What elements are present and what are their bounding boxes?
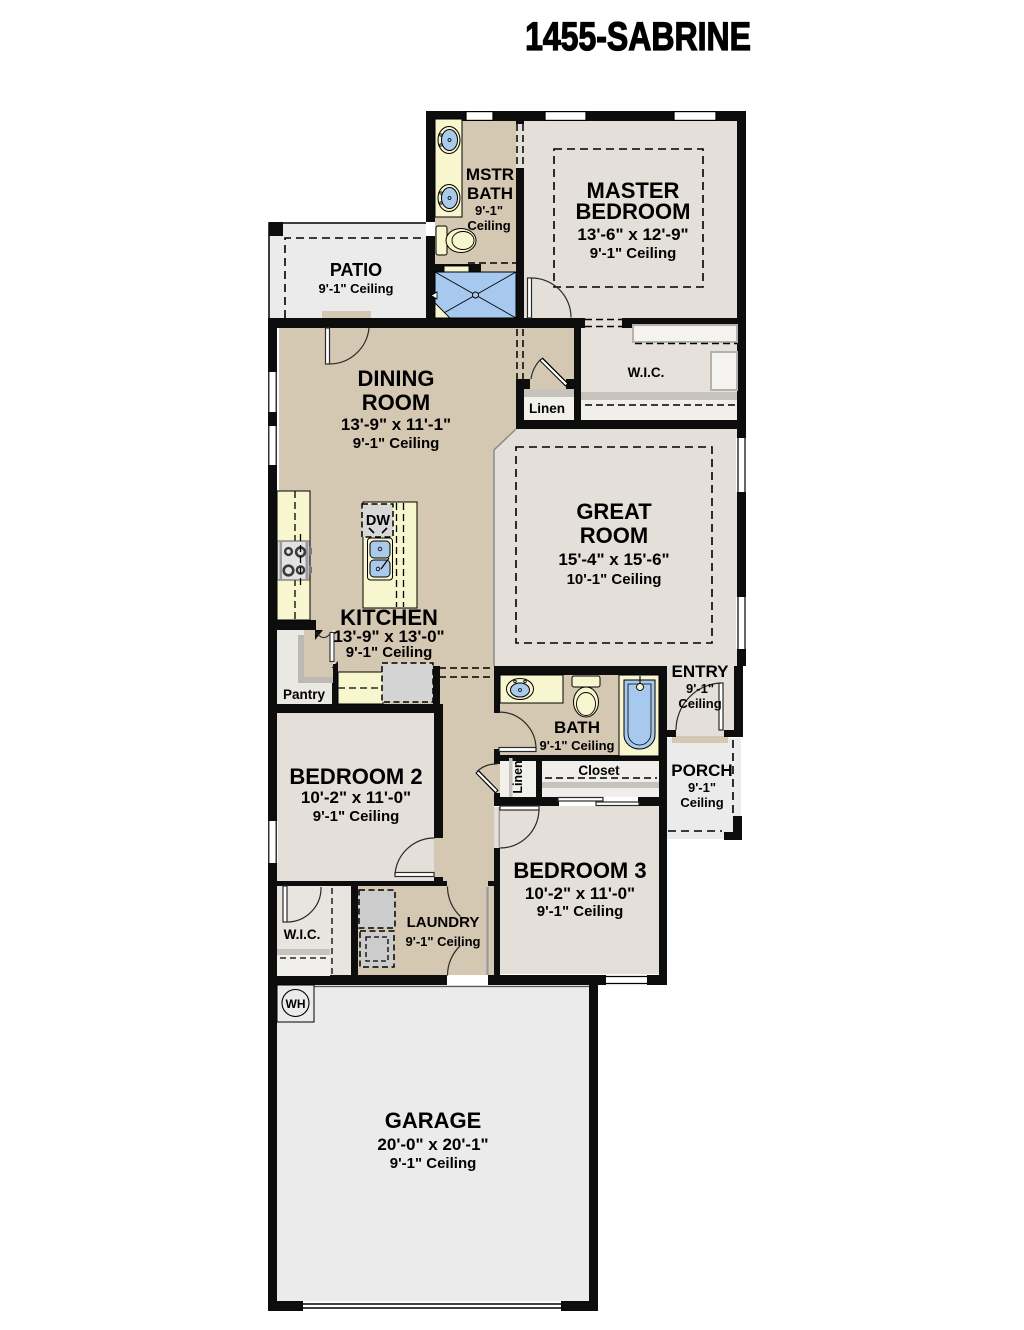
svg-text:WH: WH	[286, 997, 306, 1011]
svg-text:15'-4" x 15'-6": 15'-4" x 15'-6"	[558, 550, 669, 569]
svg-text:9'-1": 9'-1"	[475, 203, 503, 218]
svg-text:9'-1" Ceiling: 9'-1" Ceiling	[319, 281, 394, 296]
svg-text:ROOM: ROOM	[580, 523, 648, 548]
svg-text:9'-1" Ceiling: 9'-1" Ceiling	[406, 934, 481, 949]
svg-text:DINING: DINING	[358, 366, 435, 391]
svg-text:BEDROOM: BEDROOM	[576, 199, 691, 224]
svg-text:9'-1" Ceiling: 9'-1" Ceiling	[353, 435, 440, 452]
svg-text:BEDROOM 3: BEDROOM 3	[513, 858, 646, 883]
svg-text:9'-1": 9'-1"	[686, 681, 714, 696]
svg-text:Ceiling: Ceiling	[680, 795, 723, 810]
svg-text:13'-6" x 12'-9": 13'-6" x 12'-9"	[577, 225, 688, 244]
svg-text:Ceiling: Ceiling	[467, 218, 510, 233]
svg-text:9'-1" Ceiling: 9'-1" Ceiling	[313, 808, 400, 825]
svg-text:10'-2" x 11'-0": 10'-2" x 11'-0"	[301, 788, 411, 807]
svg-text:13'-9" x 11'-1": 13'-9" x 11'-1"	[341, 415, 451, 434]
svg-text:9'-1" Ceiling: 9'-1" Ceiling	[540, 738, 615, 753]
svg-text:W.I.C.: W.I.C.	[628, 365, 665, 380]
svg-text:MSTR: MSTR	[466, 165, 514, 184]
svg-text:Closet: Closet	[578, 763, 620, 778]
svg-text:Linen: Linen	[529, 401, 565, 416]
svg-text:GREAT: GREAT	[576, 499, 652, 524]
svg-text:1455-SABRINE: 1455-SABRINE	[525, 14, 751, 59]
svg-text:GARAGE: GARAGE	[385, 1108, 482, 1133]
svg-text:Linen: Linen	[511, 760, 525, 793]
svg-text:9'-1" Ceiling: 9'-1" Ceiling	[390, 1155, 477, 1172]
svg-text:Ceiling: Ceiling	[678, 696, 721, 711]
svg-text:DW: DW	[366, 513, 390, 529]
svg-text:LAUNDRY: LAUNDRY	[407, 914, 480, 931]
svg-text:W.I.C.: W.I.C.	[284, 927, 321, 942]
svg-text:9'-1" Ceiling: 9'-1" Ceiling	[590, 245, 677, 262]
svg-text:10'-2" x 11'-0": 10'-2" x 11'-0"	[525, 884, 635, 903]
svg-text:20'-0" x 20'-1": 20'-0" x 20'-1"	[377, 1135, 488, 1154]
svg-text:BEDROOM 2: BEDROOM 2	[289, 764, 422, 789]
svg-text:9'-1": 9'-1"	[688, 780, 716, 795]
svg-text:ROOM: ROOM	[362, 390, 430, 415]
svg-text:BATH: BATH	[554, 718, 600, 737]
svg-text:Pantry: Pantry	[283, 687, 326, 702]
svg-text:ENTRY: ENTRY	[672, 662, 730, 681]
svg-text:10'-1" Ceiling: 10'-1" Ceiling	[567, 571, 662, 588]
svg-text:PORCH: PORCH	[671, 761, 732, 780]
svg-text:PATIO: PATIO	[330, 260, 382, 280]
svg-text:BATH: BATH	[467, 184, 513, 203]
svg-text:9'-1" Ceiling: 9'-1" Ceiling	[346, 644, 433, 661]
svg-text:9'-1" Ceiling: 9'-1" Ceiling	[537, 903, 624, 920]
